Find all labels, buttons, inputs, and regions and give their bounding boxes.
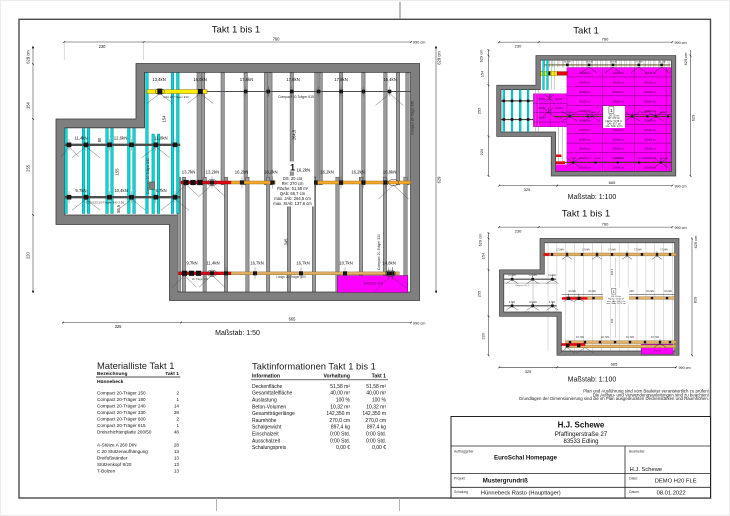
svg-text:14,8kN: 14,8kN [382,260,396,265]
svg-text:16,2kN: 16,2kN [320,170,334,175]
svg-text:9,7kN: 9,7kN [549,301,556,304]
svg-text:629 cm: 629 cm [693,236,698,249]
svg-text:760: 760 [273,36,281,41]
svg-text:max. StAb: 137,6: max. StAb: 137,6 [605,125,623,128]
svg-text:629: 629 [437,176,442,184]
svg-text:629 cm: 629 cm [479,50,484,63]
svg-text:EuroSchal Homepage: EuroSchal Homepage [494,455,558,462]
svg-text:11,4kN: 11,4kN [74,136,87,141]
svg-text:200x50 cm: 200x50 cm [579,82,591,85]
svg-text:16,0kN: 16,0kN [564,61,571,63]
svg-text:Raumhöhe: Raumhöhe [252,418,277,424]
svg-text:17,8kN: 17,8kN [610,61,617,63]
svg-text:200x50 cm: 200x50 cm [644,82,656,85]
svg-text:13,7kN: 13,7kN [182,170,196,175]
svg-text:C20 20-Träger 330: C20 20-Träger 330 [163,95,189,99]
svg-text:1: 1 [176,397,179,402]
svg-text:17,8kN: 17,8kN [636,61,643,63]
svg-text:16,7kN: 16,7kN [651,335,659,339]
svg-text:Schalungspreis: Schalungspreis [252,445,287,451]
svg-text:Vorhaltung: Vorhaltung [323,374,350,380]
svg-text:200x50 cm: 200x50 cm [613,82,625,85]
svg-text:Datum: Datum [629,490,639,494]
svg-text:264,5: 264,5 [610,268,614,275]
svg-text:990 cm: 990 cm [679,366,691,370]
svg-text:990 cm: 990 cm [413,41,425,45]
svg-text:Takt 1: Takt 1 [372,374,387,380]
svg-text:9,7kN: 9,7kN [186,260,197,265]
svg-text:Einschalzeit: Einschalzeit [252,432,279,438]
svg-text:Maßstab: 1:100: Maßstab: 1:100 [568,377,617,384]
svg-text:Dreischichtenplatte 200/50: Dreischichtenplatte 200/50 [97,430,152,435]
svg-text:Gesamttafelfläche: Gesamttafelfläche [252,391,293,397]
svg-text:Auslastung: Auslastung [252,398,277,404]
svg-text:Compact 20-Träger 330: Compact 20-Träger 330 [377,234,381,270]
svg-text:10,7kN: 10,7kN [339,260,353,265]
svg-text:629 cm: 629 cm [683,53,688,66]
svg-text:16,7kN: 16,7kN [576,335,584,339]
svg-text:270,0 cm: 270,0 cm [329,418,350,424]
svg-text:200x50 cm: 200x50 cm [613,167,625,170]
svg-text:51,58 m²: 51,58 m² [366,384,386,390]
svg-text:20-Träger 240: 20-Träger 240 [192,277,209,281]
svg-text:325: 325 [525,369,532,374]
svg-text:Compact 20-Träger 240: Compact 20-Träger 240 [97,404,146,409]
svg-text:200x50: 200x50 [538,117,547,120]
svg-text:325: 325 [115,324,123,329]
svg-text:QAb: 66,7 cm: QAb: 66,7 cm [607,122,621,125]
svg-text:16,7kN: 16,7kN [250,260,264,265]
svg-text:16,2kN: 16,2kN [297,168,311,173]
svg-text:17,8kN: 17,8kN [240,77,254,82]
svg-text:13,2kN: 13,2kN [206,170,220,175]
svg-text:270,0 cm: 270,0 cm [365,418,386,424]
svg-text:Maßstab: 1:50: Maßstab: 1:50 [215,330,260,337]
svg-text:11,4kN: 11,4kN [206,260,219,265]
svg-text:17,8kN: 17,8kN [608,249,616,252]
svg-text:200x50 cm: 200x50 cm [644,91,656,94]
svg-text:Information: Information [252,374,280,380]
svg-text:17,8kN: 17,8kN [634,249,642,252]
svg-text:Compact 20-Träger 150: Compact 20-Träger 150 [97,391,146,396]
svg-text:200x50 cm: 200x50 cm [579,72,591,75]
svg-text:16,2kN: 16,2kN [589,112,596,114]
svg-text:200x50 cm: 200x50 cm [579,91,591,94]
svg-text:10,32 m³: 10,32 m³ [366,404,386,410]
svg-text:16,0kN: 16,0kN [193,77,207,82]
svg-text:16,2kN: 16,2kN [588,290,596,293]
svg-text:H.J. Schewe: H.J. Schewe [630,467,663,473]
svg-text:629: 629 [691,115,696,122]
svg-text:Takt 1: Takt 1 [165,371,179,377]
svg-text:16,2kN: 16,2kN [568,290,576,293]
svg-text:200x50: 200x50 [555,98,564,101]
svg-text:220: 220 [479,148,484,155]
svg-text:17,8kN: 17,8kN [586,61,593,63]
svg-text:Bearbeiter: Bearbeiter [629,450,646,454]
svg-text:16,4kN: 16,4kN [383,77,397,82]
svg-text:17,8kN: 17,8kN [556,249,564,252]
svg-text:10,32 m³: 10,32 m³ [330,404,350,410]
svg-text:Bezeichnung: Bezeichnung [97,371,127,377]
svg-text:200x50: 200x50 [538,107,547,110]
svg-text:200x50 cm: 200x50 cm [644,129,656,132]
svg-text:16,2kN: 16,2kN [641,112,648,114]
svg-text:max. StAb: 137,6 cm: max. StAb: 137,6 cm [606,302,626,305]
svg-text:16,7kN: 16,7kN [601,335,609,339]
svg-text:255: 255 [477,108,482,115]
svg-text:100 %: 100 % [336,398,351,404]
svg-text:200x50 cm: 200x50 cm [613,91,625,94]
svg-text:Compact 20-Träger 330: Compact 20-Träger 330 [411,101,415,135]
svg-text:51,58 m²: 51,58 m² [330,384,350,390]
svg-text:629 cm: 629 cm [437,51,442,65]
svg-text:17,8kN: 17,8kN [660,249,668,252]
svg-text:16,7kN: 16,7kN [594,158,601,160]
svg-text:13: 13 [174,449,180,454]
svg-text:Hünnebeck: Hünnebeck [97,379,124,385]
svg-text:200x50 cm: 200x50 cm [363,281,383,286]
svg-text:13: 13 [174,462,180,467]
svg-text:230: 230 [515,44,522,49]
svg-text:200x50 cm: 200x50 cm [644,167,656,170]
svg-text:Fläche: 51,58 m²: Fläche: 51,58 m² [606,120,623,123]
svg-text:255: 255 [26,164,31,172]
svg-text:Takt 1: Takt 1 [573,26,599,37]
svg-text:100 %: 100 % [372,398,387,404]
svg-text:345: 345 [610,318,614,323]
svg-text:17,8kN: 17,8kN [334,77,348,82]
svg-text:142,350 m: 142,350 m [362,411,386,417]
svg-text:200x50 cm: 200x50 cm [579,129,591,132]
svg-text:230: 230 [515,229,522,234]
svg-text:665: 665 [611,362,618,367]
svg-text:Materialliste Takt 1: Materialliste Takt 1 [97,360,174,371]
svg-text:Schalung: Schalung [454,490,468,494]
svg-text:16,8kN: 16,8kN [383,170,397,175]
svg-text:200x50 cm: 200x50 cm [613,148,625,151]
svg-text:H.J. Schewe: H.J. Schewe [558,421,605,430]
svg-text:220: 220 [481,332,486,339]
svg-text:200x50: 200x50 [538,98,547,101]
svg-text:10,4kN: 10,4kN [114,188,128,193]
svg-text:17,8kN: 17,8kN [582,249,590,252]
svg-text:DEMO H20 FLE: DEMO H20 FLE [655,479,697,485]
svg-text:Compact 20-Tr.: Compact 20-Tr. [515,311,530,314]
svg-text:12,6kN: 12,6kN [114,136,128,141]
svg-text:Compact 20-Träger 600: Compact 20-Träger 600 [97,417,146,422]
svg-text:990 cm: 990 cm [413,321,425,325]
svg-text:0:00 Std.: 0:00 Std. [330,438,350,444]
svg-text:154: 154 [480,70,485,77]
svg-text:Compact 20-Träger 615: Compact 20-Träger 615 [97,423,146,428]
svg-text:max. StAb: 137,6 cm: max. StAb: 137,6 cm [273,201,312,206]
svg-text:16,7kN: 16,7kN [296,260,310,265]
svg-text:10,4kN: 10,4kN [529,301,537,304]
svg-text:264,5: 264,5 [292,129,297,140]
svg-text:629: 629 [693,297,698,304]
svg-text:Mustergrundriß: Mustergrundriß [483,478,528,485]
svg-text:897,4 kg: 897,4 kg [331,425,350,431]
svg-text:50,5: 50,5 [116,204,121,213]
svg-text:760: 760 [602,36,609,41]
svg-text:200x50 cm: 200x50 cm [579,138,591,141]
svg-text:Hünnebeck Rasto (Hauptlager): Hünnebeck Rasto (Hauptlager) [481,490,561,496]
svg-text:0:00 Std.: 0:00 Std. [366,438,386,444]
svg-text:11,4kN: 11,4kN [570,158,577,160]
svg-text:16,2kN: 16,2kN [235,170,249,175]
svg-text:200x50: 200x50 [555,117,564,120]
svg-text:C20-S23 20-Träger 240 3,56: C20-S23 20-Träger 240 3,56 [86,201,125,205]
svg-text:230: 230 [99,44,107,49]
svg-text:28: 28 [174,410,180,415]
svg-text:200x50 cm: 200x50 cm [579,100,591,103]
svg-text:0,00 €: 0,00 € [372,445,386,451]
svg-text:665: 665 [609,180,616,185]
svg-text:13: 13 [174,468,180,473]
svg-text:Projekt:: Projekt: [454,477,466,481]
svg-text:Compact 20-Träger 330: Compact 20-Träger 330 [97,410,146,415]
svg-text:200x50 cm: 200x50 cm [613,129,625,132]
svg-text:345: 345 [284,238,289,246]
svg-text:Gesamtträgerlänge: Gesamtträgerlänge [252,411,295,417]
svg-text:Beton-Volumen: Beton-Volumen [252,404,286,410]
svg-text:Stützenkopf 8/20: Stützenkopf 8/20 [97,462,132,467]
svg-text:Maßstab: 1:100: Maßstab: 1:100 [568,194,617,201]
svg-text:08.01.2022: 08.01.2022 [657,490,686,496]
svg-text:897,4 kg: 897,4 kg [367,425,386,431]
svg-text:200x50 cm: 200x50 cm [579,157,591,160]
svg-text:200x50 cm: 200x50 cm [579,167,591,170]
svg-text:Längs 20-Träger 600: Längs 20-Träger 600 [276,275,306,279]
svg-text:2: 2 [176,391,179,396]
svg-text:Deckenfläche: Deckenfläche [252,384,283,390]
svg-text:990 cm: 990 cm [675,226,687,230]
svg-text:12,6kN: 12,6kN [529,274,537,277]
svg-text:16,2kN: 16,2kN [664,290,672,293]
svg-text:16,2kN: 16,2kN [646,290,654,293]
svg-text:220: 220 [26,251,31,259]
svg-text:Compact 20-Träger 615: Compact 20-Träger 615 [278,95,314,99]
svg-text:Auftraggeber: Auftraggeber [454,449,474,453]
svg-text:200x50: 200x50 [555,107,564,110]
svg-text:9,7kN: 9,7kN [509,301,516,304]
svg-text:1: 1 [176,423,179,428]
svg-text:Grundlagen der Dimensionierung: Grundlagen der Dimensionierung sind die … [519,396,709,401]
svg-text:80: 80 [97,137,102,142]
svg-text:A-Stütze A 260 DIN: A-Stütze A 260 DIN [97,442,137,447]
svg-text:Compact 20-Tr.: Compact 20-Tr. [515,284,530,287]
svg-text:11,8kN: 11,8kN [548,274,556,277]
svg-text:Datei:: Datei: [629,477,638,481]
svg-text:200x50 cm: 200x50 cm [644,138,656,141]
svg-text:Ausschalzeit: Ausschalzeit [252,438,281,444]
svg-text:17,8kN: 17,8kN [286,77,300,82]
svg-text:990 cm: 990 cm [675,184,687,188]
svg-text:155: 155 [115,168,120,176]
svg-text:Takt 1 bis 1: Takt 1 bis 1 [562,209,611,220]
svg-text:11,8kN: 11,8kN [154,136,167,141]
svg-text:16,7kN: 16,7kN [616,158,623,160]
svg-text:10,7kN: 10,7kN [638,158,645,160]
svg-text:Compact 20-Träger 180: Compact 20-Träger 180 [97,397,146,402]
svg-text:11,4kN: 11,4kN [508,274,516,277]
svg-text:255: 255 [477,291,482,298]
svg-text:325: 325 [524,187,531,192]
svg-text:13,2kN: 13,2kN [567,112,574,114]
svg-text:14: 14 [174,404,180,409]
svg-text:C 20 Stützenaufhängung: C 20 Stützenaufhängung [97,449,148,454]
svg-text:665: 665 [289,317,297,322]
svg-text:Taktinformationen Takt 1 bis: Taktinformationen Takt 1 bis 1 [252,361,376,372]
svg-text:200x50 cm: 200x50 cm [613,72,625,75]
svg-text:40,00 m²: 40,00 m² [330,391,350,397]
svg-text:40,00 m²: 40,00 m² [366,391,386,397]
svg-text:16,2kN: 16,2kN [264,170,278,175]
svg-text:200x50: 200x50 [653,351,661,353]
svg-text:200x50 cm: 200x50 cm [644,148,656,151]
svg-text:629 cm: 629 cm [26,50,31,64]
svg-text:200x50 cm: 200x50 cm [644,100,656,103]
svg-text:16,2kN: 16,2kN [351,170,365,175]
svg-text:200x50 cm: 200x50 cm [579,148,591,151]
svg-text:16,7kN: 16,7kN [626,335,634,339]
svg-text:154: 154 [481,252,486,259]
svg-text:154: 154 [26,101,31,109]
svg-text:990 cm: 990 cm [675,41,687,45]
svg-text:0:00 Std.: 0:00 Std. [366,432,386,438]
svg-text:28: 28 [174,442,180,447]
svg-text:16,4kN: 16,4kN [659,61,666,63]
svg-text:83533 Edling: 83533 Edling [563,439,598,445]
svg-text:Takt 1 bis 1: Takt 1 bis 1 [212,25,261,36]
svg-text:2: 2 [176,417,179,422]
svg-text:Schalgewicht: Schalgewicht [252,425,282,431]
svg-text:13: 13 [174,455,180,460]
svg-text:0,00 €: 0,00 € [336,445,350,451]
svg-text:T-Bolzen: T-Bolzen [97,468,116,473]
svg-text:200x50 cm: 200x50 cm [613,100,625,103]
svg-text:Pfaffingerstraße 27: Pfaffingerstraße 27 [555,431,608,438]
svg-text:1: 1 [613,290,615,294]
svg-text:0:00 Std.: 0:00 Std. [330,432,350,438]
svg-text:1: 1 [610,108,613,113]
svg-text:200x50 cm: 200x50 cm [613,138,625,141]
svg-text:Compact 20-Träger 240: Compact 20-Träger 240 [146,158,150,194]
svg-text:9,7kN: 9,7kN [155,188,166,193]
svg-text:16,8kN: 16,8kN [660,112,667,114]
svg-text:629 cm: 629 cm [478,234,483,247]
svg-text:760: 760 [602,221,609,226]
svg-text:142,350 m: 142,350 m [326,411,350,417]
svg-text:154: 154 [162,115,167,123]
svg-text:48: 48 [174,430,180,435]
svg-text:9,7kN: 9,7kN [75,188,86,193]
svg-text:13,4kN: 13,4kN [152,77,166,82]
svg-text:Dreifußständer: Dreifußständer [97,455,128,460]
svg-text:14,8kN: 14,8kN [660,158,667,160]
svg-text:1: 1 [290,163,295,173]
